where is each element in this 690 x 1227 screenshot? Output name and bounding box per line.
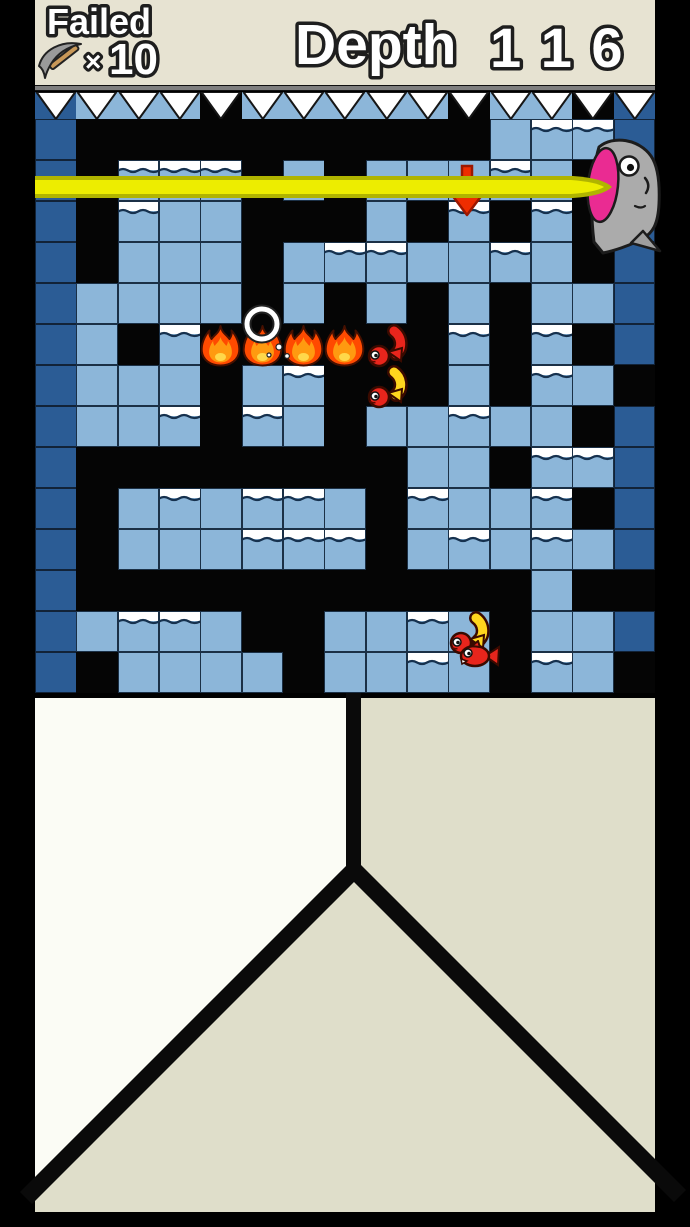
- tile: [366, 570, 408, 611]
- tile[interactable]: [118, 652, 160, 693]
- tile: [324, 119, 366, 160]
- tile: [76, 529, 118, 570]
- tile[interactable]: [407, 242, 449, 283]
- tile[interactable]: [366, 201, 408, 242]
- tile: [283, 611, 325, 652]
- tile: [490, 324, 532, 365]
- tile[interactable]: [283, 529, 325, 570]
- tile: [407, 365, 449, 406]
- tile: [324, 283, 366, 324]
- tile: [200, 119, 242, 160]
- tile: [490, 447, 532, 488]
- tile[interactable]: [531, 447, 573, 488]
- tile[interactable]: [531, 570, 573, 611]
- game-screen: Failed × 10 Depth 1 1 6: [0, 0, 690, 1227]
- tile: [490, 283, 532, 324]
- tile: [200, 406, 242, 447]
- depth-value: 1 1 6: [490, 16, 625, 79]
- tile[interactable]: [531, 611, 573, 652]
- tile[interactable]: [614, 324, 656, 365]
- tile[interactable]: [200, 652, 242, 693]
- tile[interactable]: [200, 242, 242, 283]
- tile[interactable]: [242, 406, 284, 447]
- tile[interactable]: [35, 119, 77, 160]
- spike-icon: [35, 92, 77, 120]
- tile[interactable]: [118, 488, 160, 529]
- tile: [407, 324, 449, 365]
- tile[interactable]: [614, 447, 656, 488]
- tile[interactable]: [366, 611, 408, 652]
- spike-icon: [159, 92, 201, 120]
- spike-icon: [614, 92, 656, 120]
- tile[interactable]: [35, 365, 77, 406]
- tunnel-line-vertical: [346, 693, 361, 876]
- tile: [200, 570, 242, 611]
- tile: [242, 611, 284, 652]
- tile: [242, 201, 284, 242]
- spike-icon: [324, 92, 366, 120]
- tile[interactable]: [200, 611, 242, 652]
- tile: [76, 242, 118, 283]
- tile[interactable]: [448, 488, 490, 529]
- tile[interactable]: [614, 611, 656, 652]
- tile: [572, 324, 614, 365]
- pickaxe-icon: [33, 36, 93, 82]
- tile[interactable]: [407, 406, 449, 447]
- tile[interactable]: [159, 365, 201, 406]
- tile: [242, 447, 284, 488]
- tile[interactable]: [614, 283, 656, 324]
- spike-icon: [76, 92, 118, 120]
- tile[interactable]: [572, 447, 614, 488]
- tile[interactable]: [159, 611, 201, 652]
- tile: [614, 570, 656, 611]
- tile: [283, 652, 325, 693]
- tile[interactable]: [242, 529, 284, 570]
- tile[interactable]: [614, 406, 656, 447]
- tile[interactable]: [448, 447, 490, 488]
- tile[interactable]: [448, 242, 490, 283]
- tile[interactable]: [490, 119, 532, 160]
- tile: [407, 283, 449, 324]
- hud-panel: Failed × 10 Depth 1 1 6: [35, 0, 655, 85]
- tile: [200, 447, 242, 488]
- tile[interactable]: [366, 283, 408, 324]
- tile: [200, 365, 242, 406]
- tile[interactable]: [490, 242, 532, 283]
- tile[interactable]: [76, 365, 118, 406]
- tile[interactable]: [324, 529, 366, 570]
- tile[interactable]: [76, 324, 118, 365]
- tile[interactable]: [490, 488, 532, 529]
- fire-hazard-icon: [200, 324, 241, 367]
- tile: [448, 119, 490, 160]
- tile[interactable]: [118, 365, 160, 406]
- tile[interactable]: [35, 406, 77, 447]
- tile[interactable]: [572, 283, 614, 324]
- tile: [324, 406, 366, 447]
- tile[interactable]: [76, 406, 118, 447]
- tile: [490, 570, 532, 611]
- tile[interactable]: [490, 406, 532, 447]
- tile[interactable]: [283, 242, 325, 283]
- tile: [242, 242, 284, 283]
- tile: [324, 365, 366, 406]
- tile[interactable]: [448, 406, 490, 447]
- tile[interactable]: [324, 488, 366, 529]
- tile[interactable]: [448, 283, 490, 324]
- tile[interactable]: [407, 529, 449, 570]
- tile[interactable]: [531, 365, 573, 406]
- depth-label: Depth: [295, 13, 456, 77]
- tile[interactable]: [283, 488, 325, 529]
- tile[interactable]: [35, 529, 77, 570]
- tile[interactable]: [76, 283, 118, 324]
- tile: [614, 365, 656, 406]
- spike-icon: [407, 92, 449, 120]
- tile: [448, 570, 490, 611]
- tile[interactable]: [35, 324, 77, 365]
- tile: [324, 201, 366, 242]
- tile: [118, 119, 160, 160]
- tile[interactable]: [76, 611, 118, 652]
- fish-head-enemy: [565, 130, 690, 268]
- tile[interactable]: [572, 529, 614, 570]
- tile[interactable]: [159, 324, 201, 365]
- tile: [76, 447, 118, 488]
- tile: [118, 447, 160, 488]
- tile[interactable]: [283, 406, 325, 447]
- tile[interactable]: [159, 652, 201, 693]
- bubble-ring-icon: [241, 303, 301, 363]
- tile: [283, 570, 325, 611]
- tile[interactable]: [531, 652, 573, 693]
- tile[interactable]: [200, 488, 242, 529]
- tile[interactable]: [531, 324, 573, 365]
- spike-icon: [242, 92, 284, 120]
- tile: [76, 488, 118, 529]
- tile[interactable]: [35, 283, 77, 324]
- spike-icon: [572, 92, 614, 120]
- tile[interactable]: [118, 201, 160, 242]
- spike-icon: [283, 92, 325, 120]
- tile[interactable]: [159, 488, 201, 529]
- tile: [159, 447, 201, 488]
- tile: [76, 201, 118, 242]
- tile[interactable]: [242, 365, 284, 406]
- tile[interactable]: [531, 488, 573, 529]
- fish-enemy-icon: [456, 640, 502, 672]
- tile[interactable]: [531, 283, 573, 324]
- tile: [242, 570, 284, 611]
- tile[interactable]: [572, 652, 614, 693]
- tile[interactable]: [407, 652, 449, 693]
- spike-icon: [490, 92, 532, 120]
- tile[interactable]: [35, 488, 77, 529]
- tile: [490, 365, 532, 406]
- spike-icon: [448, 92, 490, 120]
- tile: [407, 119, 449, 160]
- tile[interactable]: [242, 488, 284, 529]
- depth-counter: Depth 1 1 6: [285, 0, 655, 85]
- tile[interactable]: [448, 529, 490, 570]
- tile[interactable]: [35, 611, 77, 652]
- tile[interactable]: [283, 365, 325, 406]
- tile[interactable]: [35, 570, 77, 611]
- tile[interactable]: [407, 611, 449, 652]
- tile[interactable]: [448, 324, 490, 365]
- tile[interactable]: [35, 242, 77, 283]
- fish-enemy-icon: [365, 324, 408, 368]
- tile[interactable]: [35, 652, 77, 693]
- spike-icon: [200, 92, 242, 120]
- tile: [118, 324, 160, 365]
- tile[interactable]: [614, 488, 656, 529]
- tile[interactable]: [200, 529, 242, 570]
- tile: [76, 119, 118, 160]
- tile: [283, 201, 325, 242]
- tile[interactable]: [35, 201, 77, 242]
- tile[interactable]: [118, 242, 160, 283]
- tile[interactable]: [200, 283, 242, 324]
- fish-enemy-icon: [365, 365, 408, 409]
- tile[interactable]: [614, 529, 656, 570]
- tile[interactable]: [35, 447, 77, 488]
- tile[interactable]: [407, 447, 449, 488]
- tile[interactable]: [572, 611, 614, 652]
- tile[interactable]: [324, 611, 366, 652]
- tile: [366, 488, 408, 529]
- tile[interactable]: [448, 365, 490, 406]
- tile[interactable]: [159, 201, 201, 242]
- cave-fork-map: [0, 693, 690, 1227]
- tile: [490, 201, 532, 242]
- tile: [324, 447, 366, 488]
- tile[interactable]: [531, 529, 573, 570]
- tile: [283, 119, 325, 160]
- tile[interactable]: [366, 652, 408, 693]
- tile[interactable]: [118, 406, 160, 447]
- tile[interactable]: [200, 201, 242, 242]
- tile: [76, 570, 118, 611]
- tile: [283, 447, 325, 488]
- tile: [572, 488, 614, 529]
- tile[interactable]: [159, 406, 201, 447]
- tile[interactable]: [159, 529, 201, 570]
- failed-count: 10: [109, 35, 158, 84]
- tile: [159, 570, 201, 611]
- tile: [118, 570, 160, 611]
- tile: [76, 652, 118, 693]
- tile: [324, 570, 366, 611]
- tile: [366, 447, 408, 488]
- tile: [407, 201, 449, 242]
- tile[interactable]: [118, 529, 160, 570]
- tile: [572, 406, 614, 447]
- tile[interactable]: [490, 529, 532, 570]
- tile[interactable]: [118, 611, 160, 652]
- tile: [366, 119, 408, 160]
- spike-icon: [531, 92, 573, 120]
- laser-beam: [35, 175, 615, 199]
- tile: [242, 119, 284, 160]
- tile: [366, 529, 408, 570]
- spike-rail: [35, 85, 655, 91]
- tile[interactable]: [366, 406, 408, 447]
- tile[interactable]: [407, 488, 449, 529]
- spike-icon: [118, 92, 160, 120]
- tile[interactable]: [324, 242, 366, 283]
- tile[interactable]: [118, 283, 160, 324]
- tile: [572, 570, 614, 611]
- spike-icon: [366, 92, 408, 120]
- tile[interactable]: [531, 406, 573, 447]
- tile[interactable]: [159, 283, 201, 324]
- fire-hazard-icon: [324, 324, 365, 367]
- tile: [407, 570, 449, 611]
- tile[interactable]: [242, 652, 284, 693]
- tile: [614, 652, 656, 693]
- tile[interactable]: [572, 365, 614, 406]
- tile[interactable]: [159, 242, 201, 283]
- tile[interactable]: [366, 242, 408, 283]
- tile[interactable]: [324, 652, 366, 693]
- tile: [159, 119, 201, 160]
